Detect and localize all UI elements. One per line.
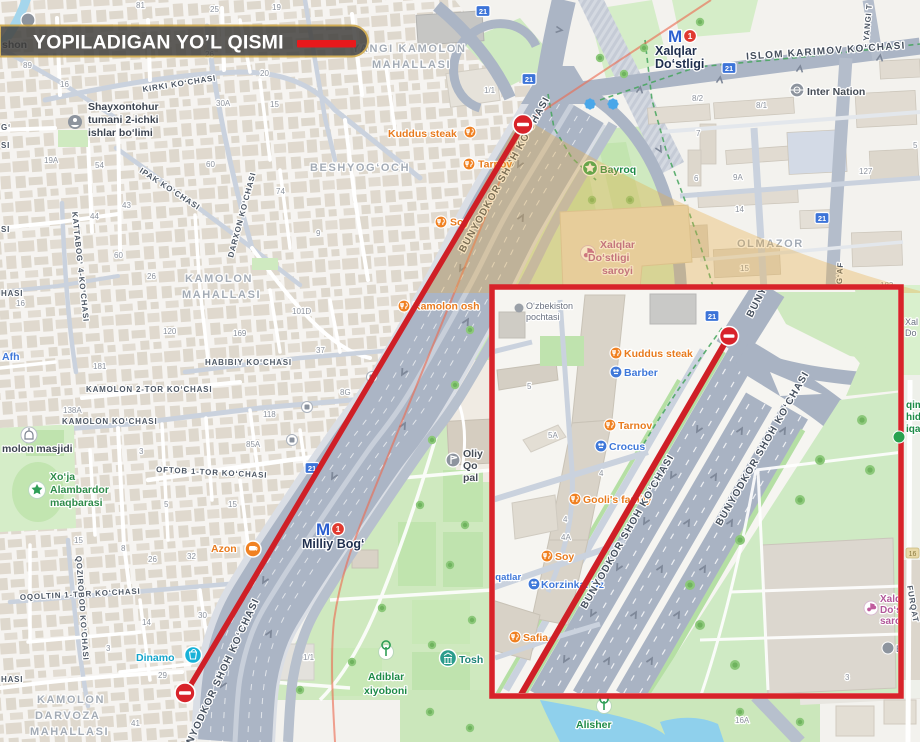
- svg-text:181: 181: [93, 362, 107, 371]
- svg-text:KAMOLON: KAMOLON: [37, 694, 105, 706]
- svg-text:4A: 4A: [561, 533, 571, 542]
- svg-text:54: 54: [95, 161, 104, 170]
- svg-text:Kamolon osh: Kamolon osh: [413, 301, 480, 313]
- svg-text:hid: hid: [906, 412, 920, 423]
- svg-text:HASI: HASI: [1, 675, 23, 684]
- svg-text:DARVOZA: DARVOZA: [35, 710, 100, 722]
- svg-text:Dinamo: Dinamo: [136, 652, 175, 664]
- svg-text:Shayxontohur: Shayxontohur: [88, 101, 159, 113]
- svg-text:1/1: 1/1: [303, 653, 315, 662]
- svg-text:Azon: Azon: [211, 543, 237, 555]
- svg-text:20: 20: [260, 69, 269, 78]
- svg-text:7: 7: [696, 129, 701, 138]
- svg-text:127: 127: [859, 167, 873, 176]
- svg-text:MAHALLASI: MAHALLASI: [182, 289, 261, 301]
- svg-text:15: 15: [74, 536, 83, 545]
- svg-text:21: 21: [479, 7, 487, 16]
- svg-text:Soy: Soy: [555, 551, 574, 563]
- svg-text:4: 4: [563, 515, 568, 524]
- svg-text:molon masjidi: molon masjidi: [2, 443, 73, 455]
- svg-text:5: 5: [913, 141, 918, 150]
- svg-text:Alambardor: Alambardor: [50, 484, 109, 496]
- svg-text:YOPILADIGAN YO’L QISMI: YOPILADIGAN YO’L QISMI: [33, 32, 284, 54]
- svg-text:Barber: Barber: [624, 367, 658, 379]
- svg-text:Do‘stligi: Do‘stligi: [655, 57, 704, 71]
- svg-text:3: 3: [845, 673, 850, 682]
- svg-text:HASI: HASI: [1, 289, 23, 298]
- svg-text:8/2: 8/2: [692, 94, 704, 103]
- svg-text:Alisher: Alisher: [576, 719, 612, 731]
- svg-text:YANGI KAMOLON: YANGI KAMOLON: [352, 43, 467, 55]
- svg-text:138A: 138A: [63, 406, 82, 415]
- svg-text:Xal: Xal: [905, 317, 918, 327]
- svg-text:44: 44: [90, 212, 99, 221]
- svg-text:Safia: Safia: [523, 632, 548, 644]
- svg-text:pal: pal: [463, 472, 478, 484]
- svg-text:19A: 19A: [44, 156, 59, 165]
- svg-text:29: 29: [158, 671, 167, 680]
- svg-text:5: 5: [527, 382, 532, 391]
- svg-text:60: 60: [206, 160, 215, 169]
- svg-text:Afh: Afh: [2, 351, 20, 363]
- svg-text:21: 21: [725, 64, 733, 73]
- svg-text:Crocus: Crocus: [609, 441, 645, 453]
- svg-text:5: 5: [164, 500, 169, 509]
- svg-text:60: 60: [114, 251, 123, 260]
- svg-text:Do: Do: [905, 328, 917, 338]
- svg-text:30A: 30A: [216, 99, 231, 108]
- svg-text:G‘: G‘: [1, 123, 11, 132]
- svg-text:120: 120: [163, 327, 177, 336]
- svg-text:Oliy: Oliy: [463, 448, 483, 460]
- svg-text:16: 16: [60, 80, 69, 89]
- svg-text:Inter Nation: Inter Nation: [807, 86, 865, 98]
- svg-text:HABIBIY KO‘CHASI: HABIBIY KO‘CHASI: [205, 358, 292, 367]
- svg-text:14: 14: [142, 618, 151, 627]
- svg-text:1: 1: [688, 31, 693, 41]
- svg-text:15: 15: [228, 500, 237, 509]
- svg-text:O‘zbekiston: O‘zbekiston: [526, 301, 573, 311]
- svg-text:Xalq: Xalq: [880, 594, 901, 605]
- svg-text:xiyoboni: xiyoboni: [364, 685, 407, 697]
- svg-text:Tosh: Tosh: [459, 654, 483, 666]
- svg-text:30: 30: [198, 611, 207, 620]
- svg-text:74: 74: [276, 187, 285, 196]
- svg-text:89: 89: [23, 61, 32, 70]
- svg-text:MAHALLASI: MAHALLASI: [30, 726, 109, 738]
- svg-text:Milliy Bog‘: Milliy Bog‘: [302, 537, 365, 551]
- svg-text:21: 21: [818, 214, 826, 223]
- svg-text:3: 3: [139, 447, 144, 456]
- svg-text:43: 43: [122, 201, 131, 210]
- svg-text:41: 41: [131, 719, 140, 728]
- svg-text:16: 16: [16, 299, 25, 308]
- svg-text:4: 4: [599, 469, 604, 478]
- svg-text:SI: SI: [1, 141, 10, 150]
- svg-text:26: 26: [147, 272, 156, 281]
- svg-text:16: 16: [909, 551, 917, 558]
- svg-text:118: 118: [263, 410, 276, 419]
- svg-text:Tarnov: Tarnov: [618, 420, 652, 432]
- svg-text:1: 1: [336, 524, 341, 534]
- svg-text:25: 25: [210, 5, 219, 14]
- svg-text:Kuddus steak: Kuddus steak: [624, 348, 693, 360]
- svg-text:8/1: 8/1: [756, 101, 768, 110]
- svg-text:81: 81: [136, 1, 145, 10]
- svg-text:KAMOLON KO‘CHASI: KAMOLON KO‘CHASI: [62, 417, 157, 426]
- svg-text:85A: 85A: [246, 440, 261, 449]
- svg-text:19: 19: [272, 3, 281, 12]
- svg-text:Adiblar: Adiblar: [368, 671, 404, 683]
- svg-text:32: 32: [187, 552, 196, 561]
- svg-text:6: 6: [694, 174, 699, 183]
- svg-text:Xalqlar: Xalqlar: [655, 44, 697, 58]
- svg-text:21: 21: [708, 312, 716, 321]
- svg-text:saro: saro: [880, 616, 901, 627]
- svg-text:15: 15: [270, 100, 279, 109]
- svg-text:14: 14: [735, 205, 744, 214]
- svg-text:BESHYOG‘OCH: BESHYOG‘OCH: [310, 162, 410, 174]
- svg-text:KAMOLON: KAMOLON: [185, 273, 253, 285]
- svg-text:5A: 5A: [548, 431, 558, 440]
- svg-text:26: 26: [148, 555, 157, 564]
- svg-text:MAHALLASI: MAHALLASI: [372, 59, 451, 71]
- svg-text:101D: 101D: [292, 307, 311, 316]
- svg-text:tumani 2-ichki: tumani 2-ichki: [88, 114, 159, 126]
- svg-text:9: 9: [316, 229, 321, 238]
- svg-text:SI: SI: [1, 225, 10, 234]
- svg-text:Qo: Qo: [463, 460, 478, 472]
- svg-text:9A: 9A: [733, 173, 743, 182]
- svg-text:pochtasi: pochtasi: [526, 312, 560, 322]
- svg-text:21: 21: [525, 75, 533, 84]
- svg-text:37: 37: [316, 346, 325, 355]
- svg-text:KAMOLON 2-TOR KO‘CHASI: KAMOLON 2-TOR KO‘CHASI: [86, 385, 212, 394]
- svg-text:169: 169: [233, 329, 247, 338]
- svg-text:iqa: iqa: [906, 424, 920, 435]
- svg-text:Kuddus steak: Kuddus steak: [388, 128, 457, 140]
- svg-text:8: 8: [121, 544, 126, 553]
- svg-text:maqbarasi: maqbarasi: [50, 497, 103, 509]
- svg-text:qim: qim: [906, 400, 920, 411]
- svg-text:1/1: 1/1: [484, 86, 496, 95]
- svg-text:8G: 8G: [340, 388, 351, 397]
- svg-text:Xo‘ja: Xo‘ja: [50, 471, 75, 483]
- svg-text:3: 3: [106, 644, 111, 653]
- svg-text:16A: 16A: [735, 716, 750, 725]
- svg-text:ishlar bo‘limi: ishlar bo‘limi: [88, 127, 153, 139]
